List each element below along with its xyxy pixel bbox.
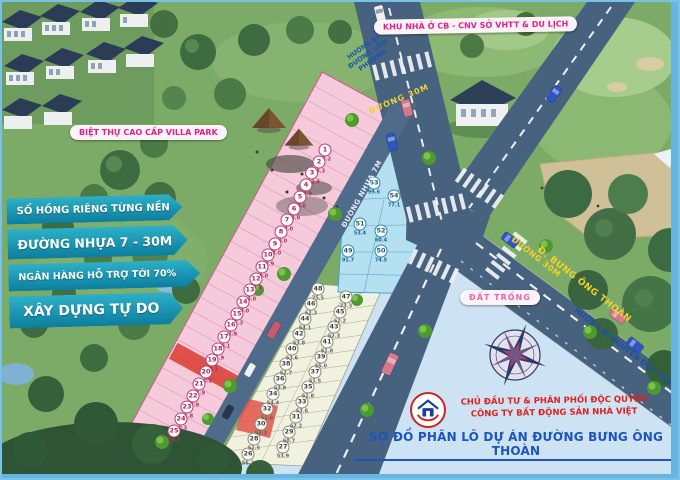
- developer-line2: CÔNG TY BẤT ĐỘNG SẢN NHÀ VIỆT: [452, 406, 656, 421]
- banner-so-hong: SỔ HỒNG RIÊNG TỪNG NỀN: [6, 194, 183, 225]
- badge-villa-park: BIỆT THỰ CAO CẤP VILLA PARK: [70, 125, 227, 140]
- benefit-banners: SỔ HỒNG RIÊNG TỪNG NỀN ĐƯỜNG NHỰA 7 - 30…: [6, 194, 201, 329]
- map-frame: [2, 474, 678, 478]
- label-duong-nhua-7m: ĐƯỜNG NHỰA 7M: [340, 159, 384, 229]
- house-icon: [414, 396, 442, 424]
- map-frame: [671, 2, 678, 478]
- badge-khu-nha-o: KHU NHÀ Ở CB - CNV SỞ VHTT & DU LỊCH: [374, 16, 578, 35]
- banner-xay-dung: XÂY DỰNG TỰ DO: [9, 292, 184, 329]
- developer-info: CHỦ ĐẦU TƯ & PHÂN PHỐI ĐỘC QUYỀN CÔNG TY…: [452, 394, 656, 421]
- land-subdivision-map: 163.2258.33102.9450.9550.0653.0752.0850.…: [0, 0, 680, 480]
- badge-dat-trong: ĐẤT TRỐNG: [460, 290, 540, 305]
- banner-duong-nhua: ĐƯỜNG NHỰA 7 - 30M: [7, 225, 188, 260]
- company-logo: [410, 392, 446, 428]
- label-huong-di-lien-phuong: HƯỚNG ĐI ĐƯỜNG LIÊN PHƯỜNG: [334, 25, 402, 83]
- banner-ngan-hang: NGÂN HÀNG HỖ TRỢ TỚI 70%: [8, 259, 201, 291]
- map-title: SƠ ĐỒ PHÂN LÔ DỰ ÁN ĐƯỜNG BƯNG ÔNG THOÀN: [354, 430, 678, 461]
- label-duong-30m-north: ĐƯỜNG 30M: [368, 82, 431, 115]
